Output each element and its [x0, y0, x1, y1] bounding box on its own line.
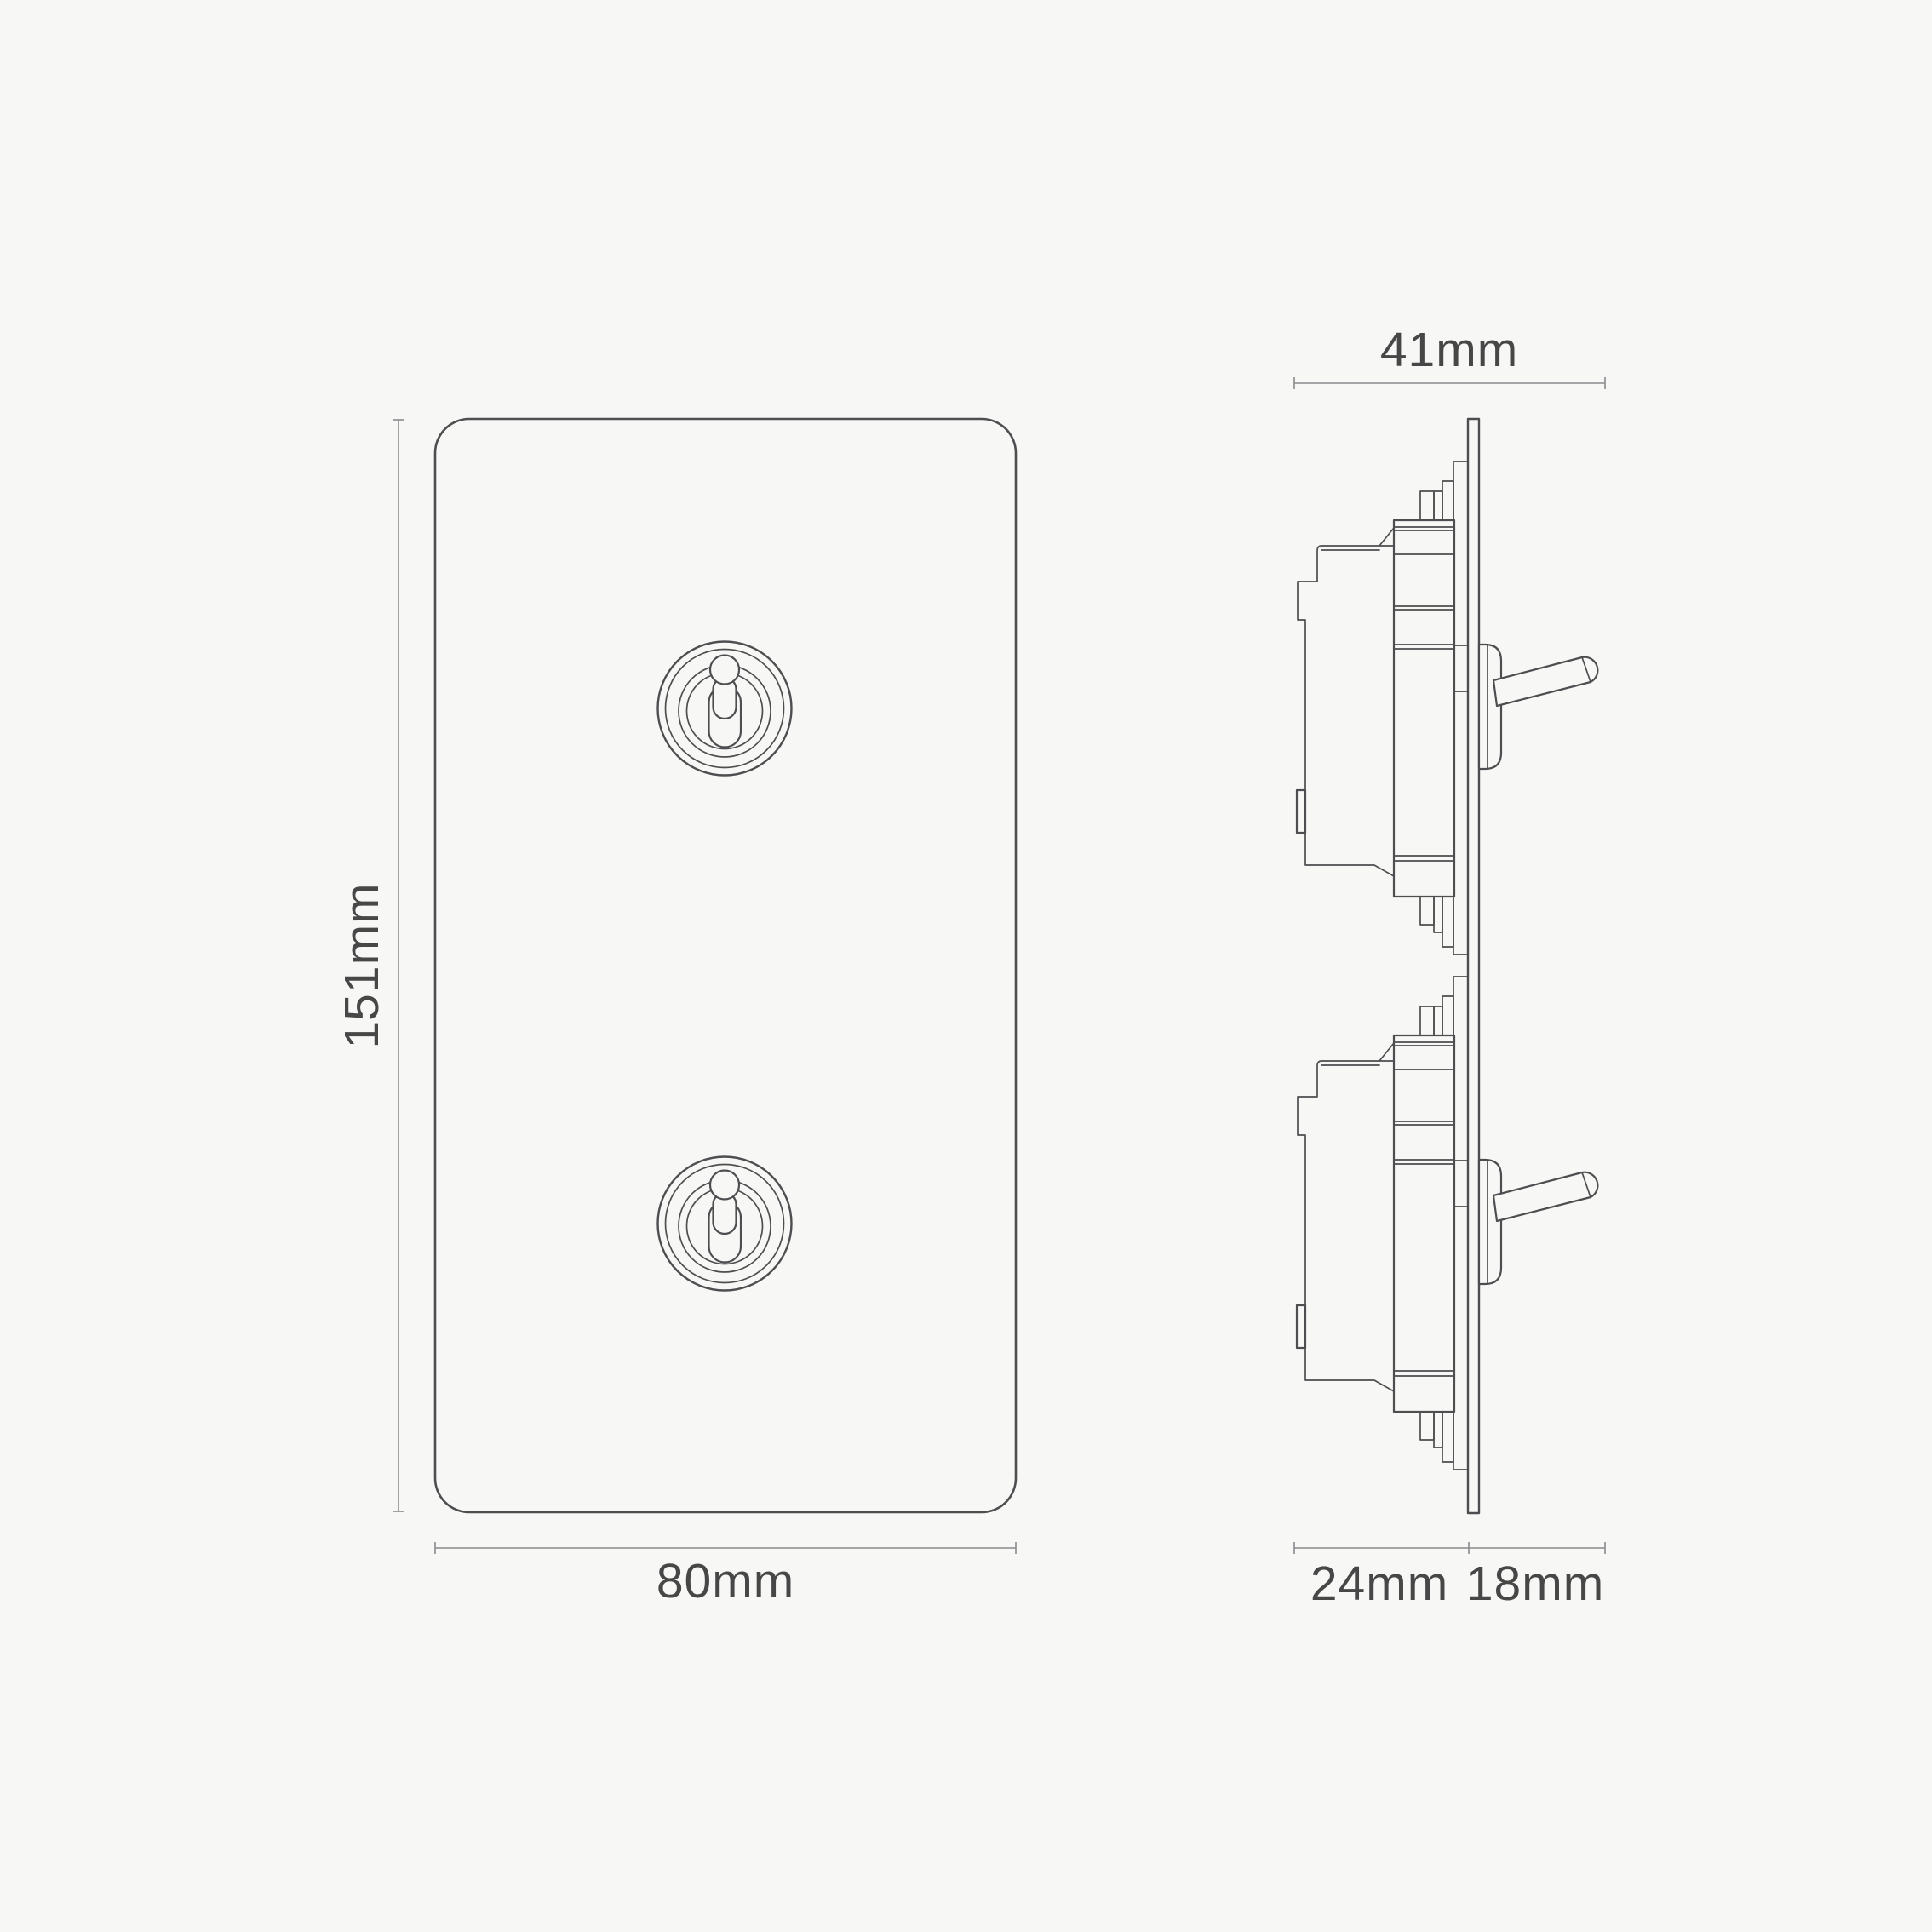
- side-width-dim-label: 41mm: [1380, 323, 1518, 377]
- depth-dim-label: 24mm: [1310, 1556, 1448, 1611]
- dimension-height: 151mm: [335, 420, 404, 1511]
- dimension-width: 80mm: [435, 1542, 1016, 1608]
- toggle-switch-top: [658, 642, 792, 776]
- front-view: [435, 419, 1016, 1512]
- toggle-switch-bottom: [658, 1157, 792, 1291]
- toggle-switch-dimension-drawing: 151mm 80mm 41mm 24mm 18mm: [0, 0, 1932, 1932]
- side-plate: [1468, 419, 1479, 1513]
- width-dim-label: 80mm: [656, 1554, 794, 1608]
- dimension-depth-protrusion: 24mm 18mm: [1294, 1542, 1605, 1611]
- front-plate: [435, 419, 1016, 1512]
- height-dim-label: 151mm: [335, 882, 389, 1048]
- switch-module-top-back: [1297, 462, 1468, 955]
- switch-module-bottom-back: [1297, 977, 1468, 1470]
- switch-module-top-lever: [1479, 645, 1597, 769]
- protrusion-dim-label: 18mm: [1466, 1556, 1604, 1611]
- switch-module-bottom-lever: [1479, 1160, 1597, 1284]
- side-view: [1297, 419, 1597, 1513]
- dimension-side-width: 41mm: [1294, 323, 1605, 389]
- technical-drawing-page: 151mm 80mm 41mm 24mm 18mm: [0, 0, 1932, 1932]
